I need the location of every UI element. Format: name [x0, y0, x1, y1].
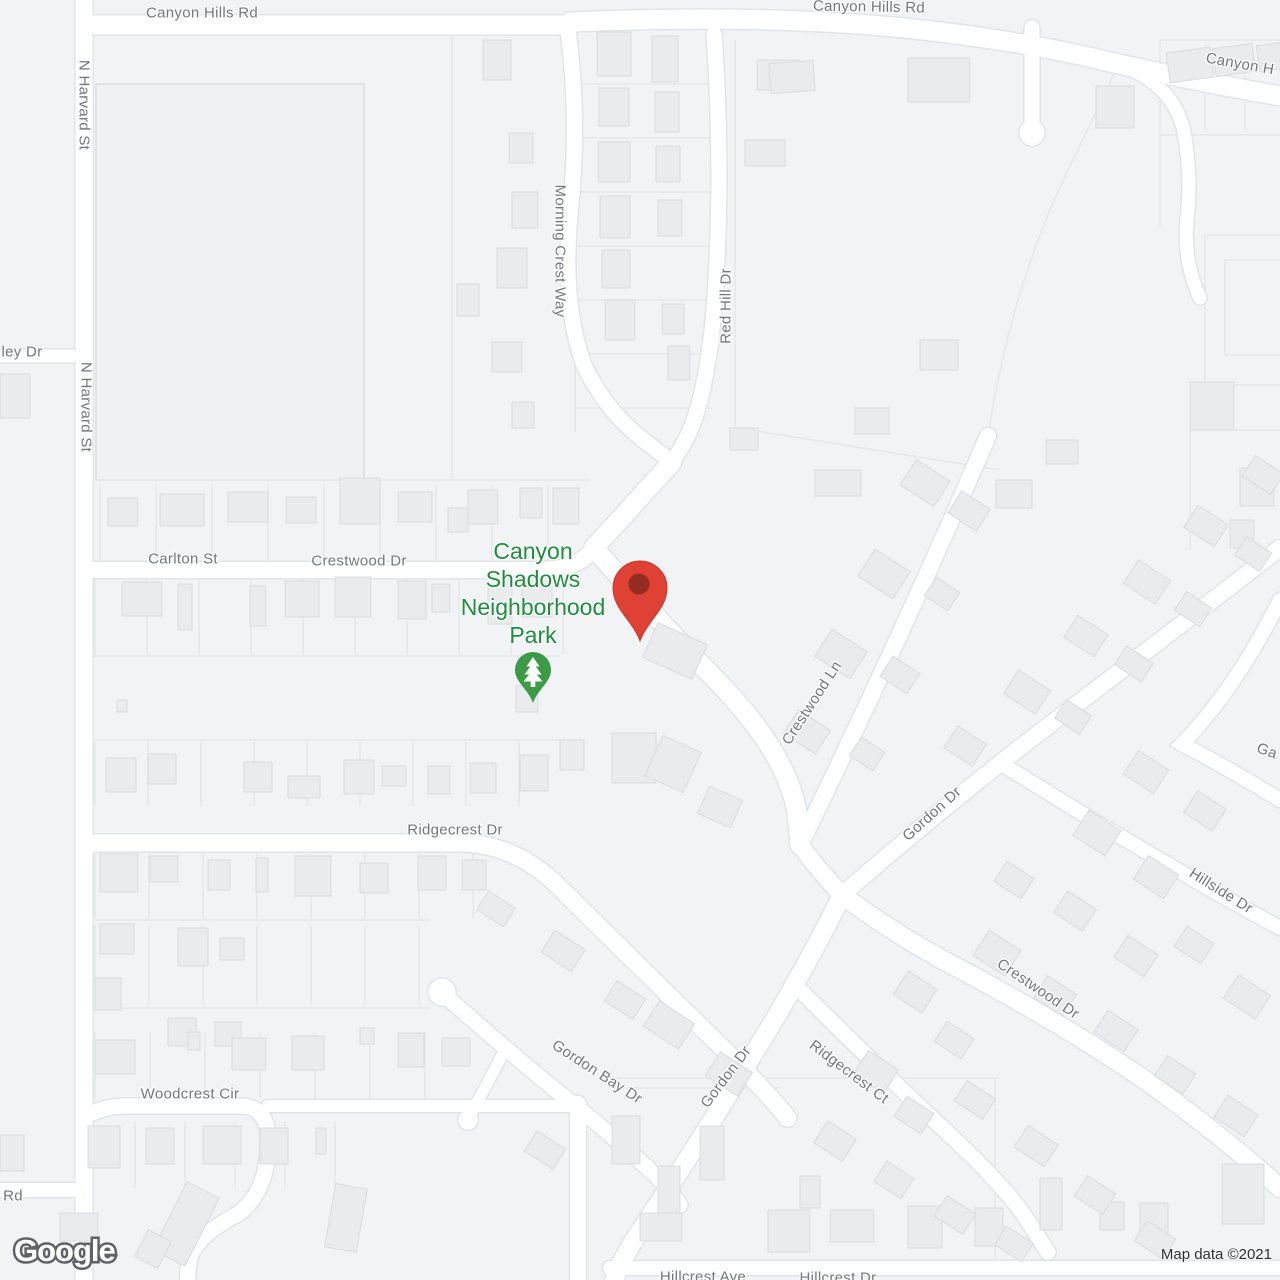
google-logo[interactable]: Google [14, 1233, 115, 1269]
destination-pin-icon[interactable] [610, 549, 670, 643]
map-attribution: Map data ©2021 [1161, 1246, 1272, 1263]
map-viewport[interactable]: Canyon Hills RdCanyon Hills RdCanyon HN … [0, 0, 1280, 1280]
park-tree-marker-icon[interactable] [513, 651, 553, 705]
map-open-blocks [96, 84, 364, 480]
